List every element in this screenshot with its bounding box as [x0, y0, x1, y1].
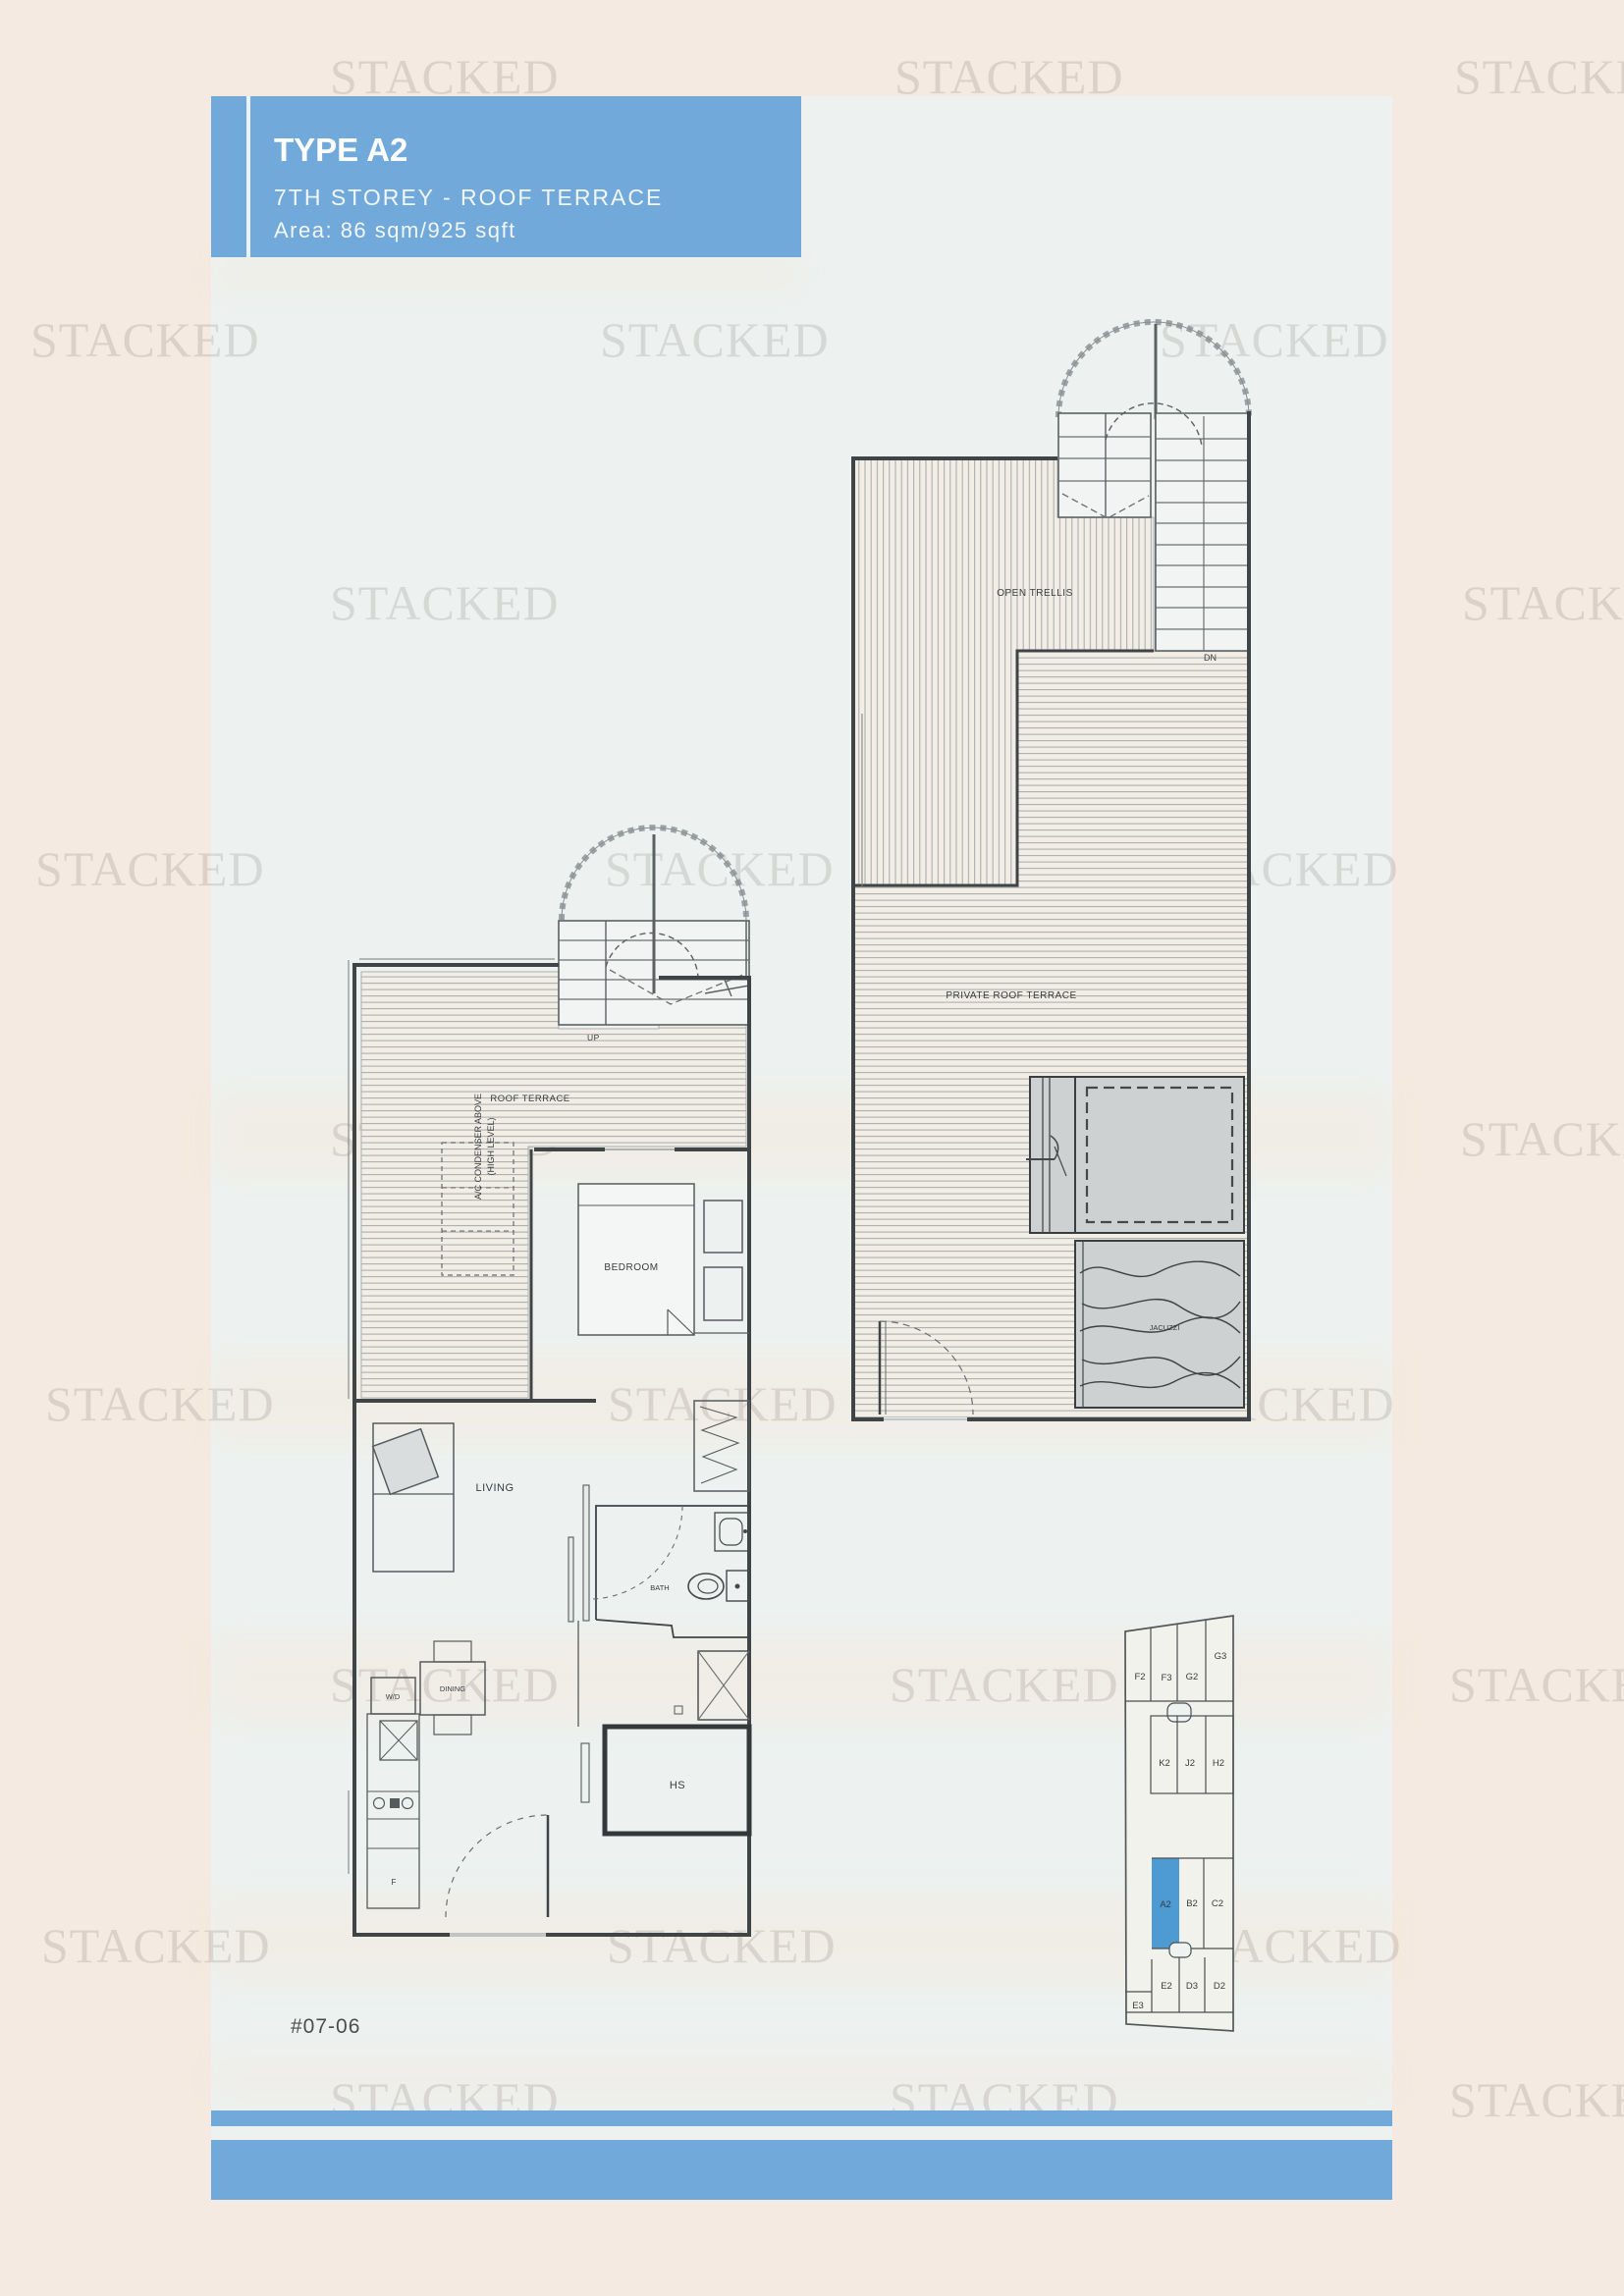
svg-text:K2: K2: [1159, 1758, 1170, 1769]
svg-text:A/C CONDENSER ABOVE: A/C CONDENSER ABOVE: [473, 1094, 483, 1200]
svg-text:H2: H2: [1213, 1758, 1224, 1769]
svg-text:PRIVATE ROOF TERRACE: PRIVATE ROOF TERRACE: [946, 990, 1076, 1001]
svg-text:BEDROOM: BEDROOM: [604, 1262, 658, 1273]
svg-text:UP: UP: [587, 1033, 600, 1042]
svg-text:HS: HS: [670, 1780, 685, 1791]
svg-text:J2: J2: [1185, 1758, 1195, 1769]
svg-text:D3: D3: [1186, 1981, 1198, 1992]
svg-text:OPEN TRELLIS: OPEN TRELLIS: [997, 588, 1073, 599]
svg-text:(HIGH LEVEL): (HIGH LEVEL): [486, 1117, 496, 1175]
svg-text:JACUZZI: JACUZZI: [1150, 1323, 1180, 1332]
svg-text:G3: G3: [1215, 1651, 1227, 1662]
svg-text:F2: F2: [1134, 1672, 1145, 1682]
svg-text:G2: G2: [1186, 1672, 1199, 1682]
svg-text:LIVING: LIVING: [475, 1482, 514, 1494]
svg-text:A2: A2: [1160, 1899, 1171, 1910]
svg-text:D2: D2: [1214, 1981, 1225, 1992]
svg-text:F: F: [392, 1878, 397, 1887]
svg-text:W/D: W/D: [386, 1692, 401, 1701]
svg-text:E2: E2: [1161, 1981, 1172, 1992]
svg-text:ROOF TERRACE: ROOF TERRACE: [490, 1094, 569, 1104]
svg-text:BATH: BATH: [650, 1583, 669, 1592]
svg-text:C2: C2: [1212, 1898, 1223, 1909]
svg-text:DN: DN: [1204, 653, 1217, 663]
svg-text:B2: B2: [1186, 1898, 1198, 1909]
svg-text:DINING: DINING: [440, 1684, 465, 1693]
svg-text:E3: E3: [1132, 2001, 1144, 2011]
svg-text:F3: F3: [1161, 1673, 1171, 1683]
